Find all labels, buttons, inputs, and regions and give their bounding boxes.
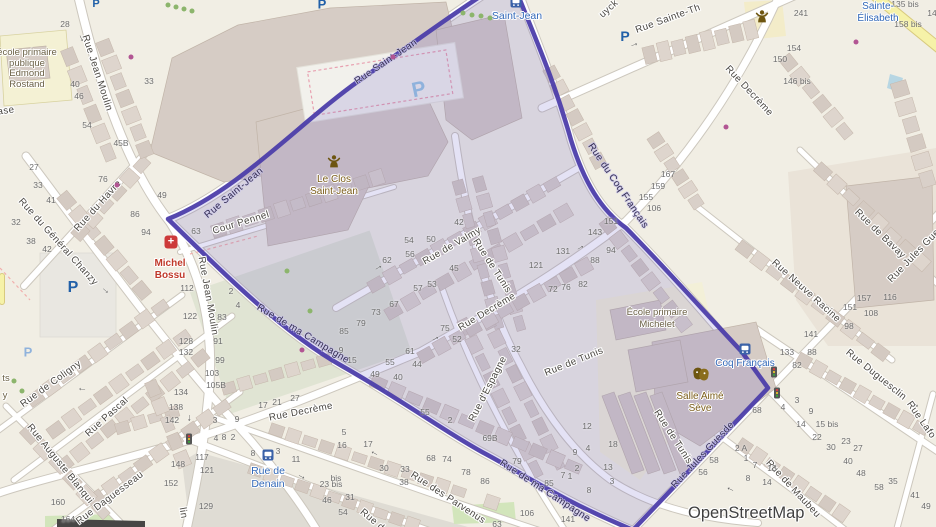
map-tiles: [0, 0, 936, 527]
map-canvas[interactable]: Rue Jean MoulinRue Jean MoulinlinRue Sai…: [0, 0, 936, 527]
attribution-link[interactable]: OpenStreetMap: [688, 504, 804, 523]
